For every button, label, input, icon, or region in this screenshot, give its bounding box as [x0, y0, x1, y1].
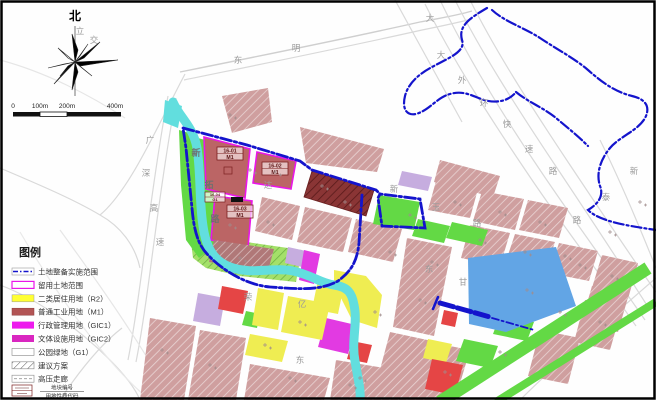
- scale-segment: [40, 112, 67, 117]
- road-label: 大: [426, 13, 435, 23]
- legend-label: 建议方案: [38, 360, 68, 370]
- road-label: 大: [437, 50, 446, 60]
- legend-label: 文体设施用地（GIC2）: [38, 334, 116, 344]
- site-marker: [231, 197, 243, 202]
- road-label: 泰: [602, 192, 611, 202]
- road-label: 立: [76, 26, 85, 36]
- road-label: 甘: [459, 277, 468, 287]
- road-label: 东: [425, 264, 434, 274]
- road-label: 广: [146, 135, 155, 145]
- legend-title: 图例: [19, 245, 41, 259]
- road-label: 新: [191, 147, 200, 158]
- scale-label: 400m: [107, 103, 123, 110]
- legend-swatch: [12, 322, 34, 329]
- parcel-label-16-04: 16-04 G1: [205, 192, 225, 202]
- legend-swatch: [12, 335, 34, 342]
- scale-segment: [67, 112, 121, 117]
- road-label: 快: [503, 119, 512, 129]
- legend-label: 二类居住用地（R2）: [38, 293, 108, 303]
- road-label: 荣: [244, 292, 253, 302]
- north-label: 北: [69, 8, 81, 23]
- legend-label: 公园绿地（G1）: [38, 347, 93, 357]
- scale-label: 0: [11, 103, 15, 110]
- legend-row-retained-land: 留用土地范围: [12, 280, 83, 290]
- scale-label: 100m: [32, 103, 48, 110]
- legend-row-park-g1: 公园绿地（G1）: [12, 347, 93, 357]
- road-label: 亿: [298, 299, 307, 309]
- map-canvas: 16-01 M1 16-02 M1 16-03 M1 16-04 G1 东 明 …: [0, 0, 656, 400]
- legend-label: 行政管理用地（GIC1）: [38, 320, 116, 330]
- road-label: 路: [473, 218, 482, 228]
- legend-label: 高压走廊: [38, 374, 68, 384]
- road-label: 路: [210, 213, 220, 224]
- legend-swatch: [12, 348, 34, 355]
- legend-row-culture-gic2: 文体设施用地（GIC2）: [12, 334, 116, 344]
- road-label: 玉: [432, 202, 441, 212]
- parcel-label-16-01: 16-01 M1: [217, 147, 243, 161]
- road-label: 新: [390, 184, 399, 194]
- road-label: 明: [292, 43, 301, 53]
- scale-label: 200m: [59, 103, 75, 110]
- road-label: 路: [549, 166, 558, 176]
- legend-row-admin-gic1: 行政管理用地（GIC1）: [12, 320, 116, 330]
- road-label: 拓: [204, 179, 213, 190]
- legend-swatch: [12, 308, 34, 315]
- road-label: 路: [573, 215, 582, 225]
- road-label: 外: [458, 75, 467, 85]
- road-label: 速: [525, 144, 534, 154]
- parcel-code: 16-03: [233, 207, 246, 213]
- legend-row-implementation-scope: 土地整备实施范围: [12, 267, 98, 277]
- road-label: 交: [90, 35, 99, 45]
- road-label: 达: [264, 180, 273, 190]
- legend-row-industrial-m1: 普通工业用地（M1）: [12, 307, 108, 317]
- legend-swatch: [12, 281, 34, 288]
- legend-label: 留用土地范围: [38, 280, 83, 290]
- parcel-use: M1: [226, 155, 233, 161]
- parcel-use: G1: [212, 197, 218, 202]
- parcel-label-16-03: 16-03 M1: [227, 205, 253, 219]
- road-label: 深: [142, 168, 151, 178]
- parcel-code: 16-01: [223, 149, 236, 155]
- scale-segment: [13, 112, 40, 117]
- road-label: 速: [156, 237, 165, 247]
- code-symbol-top: 地块编号: [51, 384, 74, 392]
- legend-row-residential-r2: 二类居住用地（R2）: [12, 293, 108, 303]
- legend-swatch: [12, 295, 34, 302]
- legend-label: 土地整备实施范围: [38, 267, 98, 277]
- legend-row-proposal: 建议方案: [12, 360, 68, 370]
- legend-row-hv-corridor: 高压走廊: [12, 374, 68, 384]
- parcel-use: M1: [236, 213, 243, 219]
- parcel-code: 16-02: [268, 164, 281, 170]
- legend-swatch: [12, 362, 34, 369]
- road-label: 新: [630, 166, 639, 176]
- parcel-red: [441, 310, 458, 327]
- road-label: 东: [234, 55, 243, 65]
- road-label: 环: [480, 98, 489, 108]
- road-label: 高: [150, 203, 159, 213]
- legend-label: 普通工业用地（M1）: [38, 307, 108, 317]
- road-label: 东: [296, 355, 305, 365]
- planning-map-screenshot: 16-01 M1 16-02 M1 16-03 M1 16-04 G1 东 明 …: [0, 0, 656, 400]
